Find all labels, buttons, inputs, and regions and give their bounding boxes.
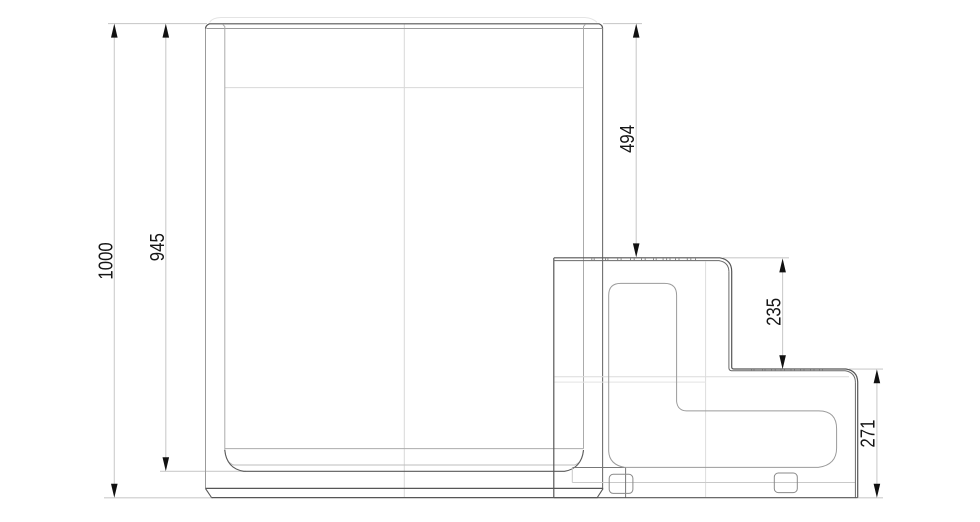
- svg-text:271: 271: [856, 420, 879, 448]
- svg-text:494: 494: [615, 125, 638, 153]
- svg-text:1000: 1000: [94, 242, 117, 279]
- svg-text:235: 235: [762, 298, 785, 326]
- svg-text:945: 945: [146, 233, 169, 261]
